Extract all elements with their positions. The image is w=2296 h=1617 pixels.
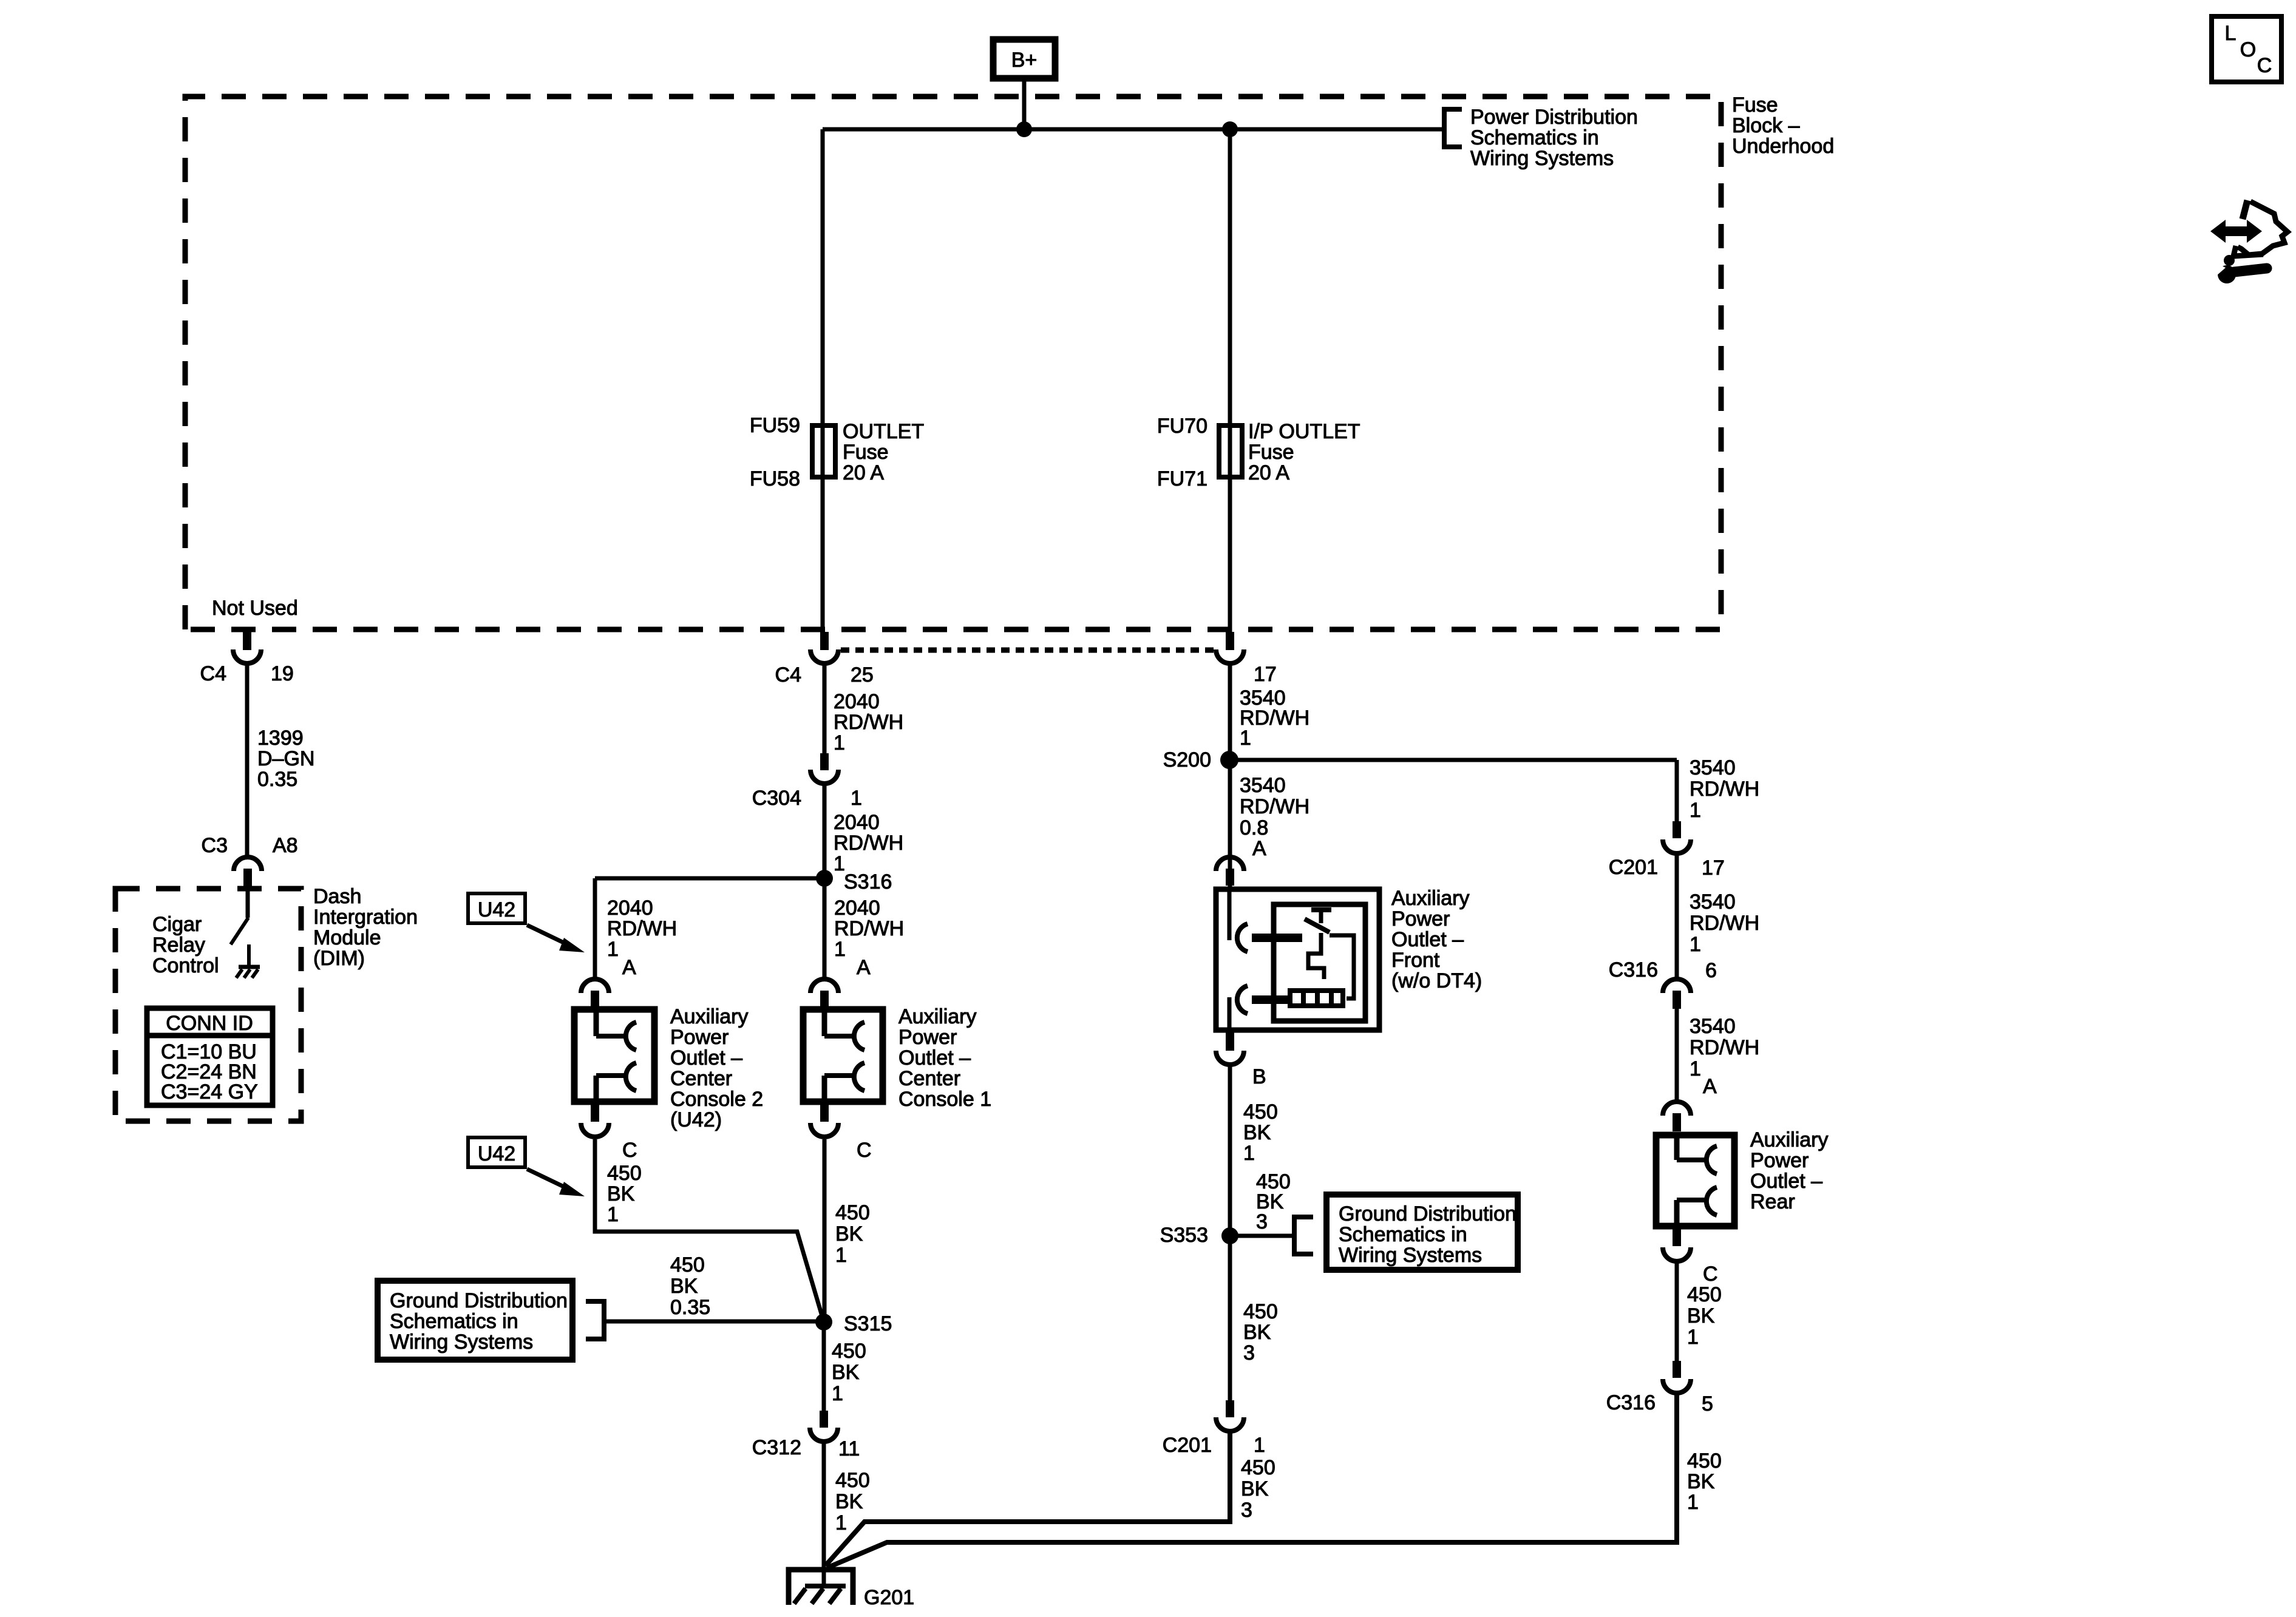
svg-text:Fuse: Fuse [1732, 93, 1778, 117]
svg-text:3: 3 [1256, 1210, 1268, 1233]
svg-text:Block –: Block – [1732, 114, 1800, 137]
svg-text:BK: BK [1687, 1304, 1715, 1327]
svg-text:5: 5 [1702, 1392, 1713, 1415]
svg-text:0.35: 0.35 [670, 1296, 710, 1319]
svg-text:FU71: FU71 [1157, 467, 1207, 490]
svg-text:19: 19 [271, 662, 294, 685]
svg-text:1: 1 [1687, 1491, 1699, 1514]
svg-text:S200: S200 [1163, 748, 1211, 771]
svg-text:A: A [1252, 837, 1266, 860]
svg-text:Schematics in: Schematics in [1470, 126, 1599, 149]
svg-text:1: 1 [835, 1511, 847, 1534]
svg-text:2040: 2040 [834, 897, 880, 920]
svg-text:Schematics in: Schematics in [1339, 1223, 1467, 1246]
svg-text:Auxiliary: Auxiliary [1750, 1128, 1828, 1151]
svg-text:BK: BK [1243, 1321, 1271, 1344]
svg-text:1: 1 [1690, 1057, 1701, 1080]
svg-text:Power Distribution: Power Distribution [1470, 106, 1638, 129]
svg-text:C3: C3 [202, 834, 228, 857]
svg-text:O: O [2240, 38, 2256, 61]
svg-text:3: 3 [1243, 1341, 1255, 1364]
svg-text:(DIM): (DIM) [313, 947, 365, 970]
svg-text:Outlet –: Outlet – [670, 1046, 742, 1070]
svg-text:B+: B+ [1011, 49, 1038, 72]
svg-text:Wiring Systems: Wiring Systems [1470, 147, 1614, 170]
svg-text:Rear: Rear [1750, 1190, 1795, 1213]
svg-text:3: 3 [1241, 1499, 1252, 1522]
svg-text:Not Used: Not Used [212, 597, 298, 620]
svg-text:RD/WH: RD/WH [1690, 778, 1759, 801]
svg-text:Outlet –: Outlet – [1391, 928, 1464, 951]
svg-text:A8: A8 [273, 834, 298, 857]
svg-text:C: C [857, 1139, 872, 1162]
svg-text:450: 450 [1687, 1283, 1722, 1306]
svg-text:Power: Power [1391, 907, 1450, 931]
svg-text:450: 450 [835, 1201, 870, 1224]
svg-text:Power: Power [898, 1026, 957, 1049]
svg-text:450: 450 [1687, 1449, 1722, 1473]
svg-text:FU59: FU59 [750, 414, 800, 437]
svg-text:Front: Front [1391, 949, 1440, 972]
svg-text:S353: S353 [1160, 1224, 1208, 1247]
svg-text:450: 450 [835, 1469, 870, 1492]
svg-text:1: 1 [1687, 1326, 1699, 1349]
svg-text:Ground Distribution: Ground Distribution [1339, 1202, 1517, 1225]
svg-text:Center: Center [898, 1067, 960, 1090]
svg-text:Auxiliary: Auxiliary [898, 1005, 976, 1028]
svg-text:C316: C316 [1606, 1391, 1656, 1414]
svg-text:Underhood: Underhood [1732, 135, 1834, 158]
svg-text:1: 1 [1690, 799, 1701, 822]
svg-text:17: 17 [1702, 856, 1725, 880]
svg-text:Ground Distribution: Ground Distribution [390, 1289, 568, 1312]
svg-text:450: 450 [1241, 1456, 1275, 1479]
svg-text:BK: BK [1687, 1470, 1715, 1493]
svg-text:0.8: 0.8 [1240, 816, 1268, 839]
svg-text:C312: C312 [752, 1436, 801, 1459]
svg-text:450: 450 [670, 1253, 705, 1276]
svg-text:C201: C201 [1163, 1434, 1212, 1457]
svg-text:1: 1 [1254, 1434, 1265, 1457]
svg-text:450: 450 [1243, 1100, 1278, 1124]
svg-text:2040: 2040 [834, 690, 880, 713]
svg-text:Relay: Relay [152, 934, 205, 957]
svg-text:OUTLET: OUTLET [843, 420, 924, 443]
svg-text:BK: BK [835, 1490, 863, 1513]
svg-text:RD/WH: RD/WH [834, 832, 903, 855]
svg-text:S315: S315 [844, 1312, 892, 1335]
svg-text:450: 450 [607, 1162, 642, 1185]
svg-text:RD/WH: RD/WH [834, 917, 904, 940]
svg-text:1: 1 [1240, 727, 1251, 750]
svg-text:Power: Power [1750, 1149, 1809, 1172]
svg-text:RD/WH: RD/WH [834, 711, 903, 734]
svg-text:RD/WH: RD/WH [1240, 795, 1309, 818]
svg-text:1: 1 [1243, 1142, 1255, 1165]
svg-text:1: 1 [832, 1382, 843, 1405]
svg-text:C: C [2257, 54, 2272, 77]
svg-text:Wiring Systems: Wiring Systems [1339, 1244, 1482, 1267]
svg-text:3540: 3540 [1690, 890, 1736, 914]
svg-text:Center: Center [670, 1067, 732, 1090]
svg-text:6: 6 [1705, 959, 1717, 982]
svg-text:BK: BK [1241, 1477, 1269, 1500]
svg-text:D–GN: D–GN [257, 747, 314, 770]
svg-text:Module: Module [313, 926, 381, 949]
svg-text:U42: U42 [478, 898, 515, 921]
svg-text:BK: BK [1243, 1121, 1271, 1144]
svg-text:450: 450 [1243, 1300, 1278, 1323]
svg-text:B: B [1252, 1065, 1266, 1088]
svg-text:17: 17 [1254, 663, 1277, 686]
svg-text:BK: BK [607, 1182, 635, 1205]
svg-text:Fuse: Fuse [1248, 441, 1294, 464]
svg-text:1: 1 [834, 938, 846, 961]
svg-text:C316: C316 [1609, 958, 1658, 981]
svg-text:11: 11 [838, 1437, 860, 1460]
svg-text:FU70: FU70 [1157, 415, 1207, 438]
svg-text:Auxiliary: Auxiliary [670, 1005, 748, 1028]
svg-text:1: 1 [607, 938, 619, 961]
svg-text:Fuse: Fuse [843, 441, 889, 464]
svg-text:A: A [857, 956, 871, 979]
svg-text:3540: 3540 [1690, 756, 1736, 779]
svg-text:FU58: FU58 [750, 467, 800, 490]
svg-text:1399: 1399 [257, 727, 304, 750]
svg-text:Intergration: Intergration [313, 906, 418, 929]
svg-text:Schematics in: Schematics in [390, 1310, 518, 1333]
svg-text:2040: 2040 [607, 897, 653, 920]
svg-text:C: C [1703, 1263, 1718, 1286]
svg-text:C4: C4 [200, 662, 226, 685]
svg-text:Outlet –: Outlet – [898, 1046, 971, 1070]
svg-text:C3=24 GY: C3=24 GY [161, 1080, 258, 1103]
svg-text:0.35: 0.35 [257, 768, 297, 791]
svg-text:Auxiliary: Auxiliary [1391, 887, 1469, 910]
svg-text:C201: C201 [1609, 856, 1658, 879]
svg-text:(U42): (U42) [670, 1108, 722, 1131]
svg-text:1: 1 [851, 787, 862, 810]
svg-text:Dash: Dash [313, 885, 361, 908]
svg-text:3540: 3540 [1240, 774, 1286, 797]
svg-text:BK: BK [670, 1275, 698, 1298]
svg-text:BK: BK [832, 1361, 860, 1384]
svg-text:C4: C4 [775, 663, 801, 686]
svg-text:C: C [622, 1139, 637, 1162]
svg-text:Outlet –: Outlet – [1750, 1170, 1822, 1193]
svg-text:Cigar: Cigar [152, 913, 202, 936]
svg-text:1: 1 [835, 1244, 847, 1267]
svg-text:I/P OUTLET: I/P OUTLET [1248, 420, 1360, 443]
svg-text:Power: Power [670, 1026, 729, 1049]
svg-text:450: 450 [832, 1340, 866, 1363]
svg-text:1: 1 [834, 731, 845, 754]
svg-text:C304: C304 [752, 787, 801, 810]
svg-text:BK: BK [835, 1222, 863, 1246]
svg-text:S316: S316 [844, 870, 892, 893]
svg-text:Console 1: Console 1 [898, 1088, 991, 1111]
svg-text:A: A [622, 956, 636, 979]
svg-text:1: 1 [1690, 933, 1701, 956]
svg-text:Control: Control [152, 954, 219, 977]
svg-text:RD/WH: RD/WH [1690, 1036, 1759, 1059]
svg-text:20 A: 20 A [1248, 461, 1289, 484]
svg-text:20 A: 20 A [843, 461, 884, 484]
svg-text:Wiring Systems: Wiring Systems [390, 1331, 533, 1354]
svg-text:(w/o DT4): (w/o DT4) [1391, 969, 1482, 992]
svg-text:2040: 2040 [834, 811, 880, 834]
svg-text:3540: 3540 [1690, 1015, 1736, 1038]
svg-text:RD/WH: RD/WH [1690, 912, 1759, 935]
svg-text:G201: G201 [864, 1586, 914, 1609]
svg-text:A: A [1703, 1075, 1717, 1098]
svg-text:CONN ID: CONN ID [166, 1012, 253, 1035]
svg-text:1: 1 [607, 1203, 619, 1226]
svg-text:RD/WH: RD/WH [607, 917, 677, 940]
svg-text:Console 2: Console 2 [670, 1088, 763, 1111]
svg-text:L: L [2225, 22, 2237, 45]
svg-text:U42: U42 [478, 1142, 515, 1165]
svg-text:25: 25 [851, 663, 874, 686]
